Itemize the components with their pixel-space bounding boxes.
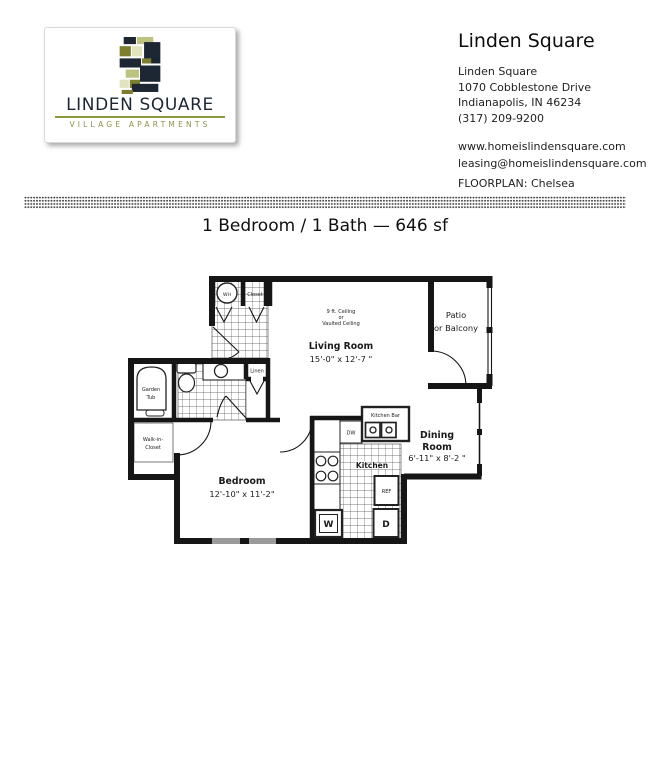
- bar-sink-drain: [370, 427, 376, 433]
- patio-door-arc: [431, 351, 466, 386]
- bedroom-label: Bedroom: [218, 476, 265, 487]
- floorplan-drawing: WH Closet Linen 9 ft. Ceiling or Vaulted…: [116, 262, 504, 554]
- linen-label: Linen: [250, 369, 264, 375]
- kitchen-label: Kitchen: [356, 461, 388, 470]
- patio-window-mullion: [487, 327, 493, 333]
- address-line: Indianapolis, IN 46234: [458, 95, 648, 111]
- dotted-divider: [24, 196, 626, 209]
- floorplan-page: LINDEN SQUARE VILLAGE APARTMENTS Linden …: [0, 0, 650, 757]
- refrigerator-label: REF: [382, 489, 392, 495]
- floorplan-name-label: FLOORPLAN: Chelsea: [458, 177, 575, 190]
- dishwasher-label: DW: [347, 431, 356, 437]
- living-room-label: Living Room: [309, 341, 374, 352]
- walk-in-closet-label: Closet: [145, 445, 161, 451]
- dining-room-label: Room: [422, 442, 452, 453]
- burner: [328, 471, 338, 481]
- property-title: Linden Square: [458, 30, 648, 52]
- patio-label: or Balcony: [434, 323, 478, 333]
- burner: [316, 471, 326, 481]
- linden-square-logo-icon: [119, 37, 161, 94]
- bedroom-door-arc: [280, 420, 312, 452]
- website-link[interactable]: www.homeislindensquare.com: [458, 139, 648, 156]
- vanity-sink: [215, 365, 228, 378]
- washer-label: W: [324, 520, 334, 530]
- dining-room-label: Dining: [420, 430, 454, 441]
- email-link[interactable]: leasing@homeislindensquare.com: [458, 156, 648, 173]
- garden-tub-label: Tub: [146, 395, 156, 401]
- bath-mat: [146, 410, 164, 416]
- garden-tub-label: Garden: [142, 387, 160, 393]
- dining-room-dims: 6'-11" x 8'-2 ": [408, 453, 466, 463]
- burner: [328, 456, 338, 466]
- walk-in-closet-label: Walk-in-: [143, 437, 163, 443]
- kitchen-counter-upper: [314, 419, 340, 452]
- logo-tagline: VILLAGE APARTMENTS: [69, 120, 210, 129]
- closet-label: Closet: [247, 292, 263, 298]
- logo-name: LINDEN SQUARE: [66, 95, 214, 115]
- patio-window-cap: [487, 276, 493, 288]
- patio-label: Patio: [446, 310, 466, 320]
- web-block: www.homeislindensquare.com leasing@homei…: [458, 139, 648, 172]
- kitchen-counter-lower: [314, 484, 340, 510]
- toilet-tank: [177, 363, 196, 373]
- walk-in-door-arc: [177, 421, 211, 455]
- dining-window-mullion: [477, 429, 482, 435]
- kitchen-bar-label: Kitchen Bar: [371, 413, 401, 419]
- logo-card: LINDEN SQUARE VILLAGE APARTMENTS: [44, 27, 236, 143]
- plan-title: 1 Bedroom / 1 Bath — 646 sf: [0, 216, 650, 236]
- logo-divider: [55, 116, 225, 118]
- address-block: Linden Square 1070 Cobblestone Drive Ind…: [458, 64, 648, 126]
- ceiling-note: Vaulted Ceiling: [322, 321, 360, 327]
- bar-sink-drain: [386, 427, 392, 433]
- address-line: Linden Square: [458, 64, 648, 80]
- address-line: 1070 Cobblestone Drive: [458, 80, 648, 96]
- toilet-bowl: [179, 374, 195, 392]
- wh-label: WH: [223, 292, 231, 298]
- living-room-dims: 15'-0" x 12'-7 ": [310, 354, 373, 364]
- bedroom-dims: 12'-10" x 11'-2": [209, 489, 275, 499]
- linen-door: [250, 381, 264, 394]
- phone-number: (317) 209-9200: [458, 111, 648, 127]
- contact-block: Linden Square Linden Square 1070 Cobbles…: [458, 30, 648, 172]
- dryer-label: D: [382, 520, 389, 530]
- burner: [316, 456, 326, 466]
- patio-window-cap: [487, 374, 493, 386]
